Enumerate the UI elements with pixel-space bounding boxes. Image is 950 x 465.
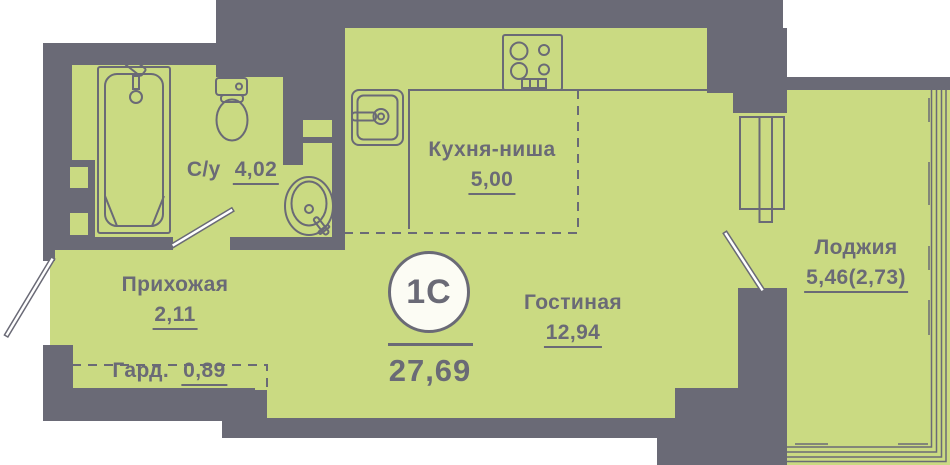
room-label-bathroom: С/у 4,02	[187, 159, 279, 185]
room-label-wardrobe: Гард. 0,89	[112, 360, 227, 386]
bathroom-area: 4,02	[233, 159, 279, 185]
room-label-living: Гостиная 12,94	[524, 292, 622, 348]
kitchen-name: Кухня-ниша	[428, 139, 555, 160]
unit-type-badge: 1С	[388, 251, 470, 333]
room-label-kitchen: Кухня-ниша 5,00	[428, 139, 555, 195]
floor-plan-drawing	[0, 0, 950, 465]
room-label-loggia: Лоджия 5,46(2,73)	[804, 237, 908, 293]
kitchen-area: 5,00	[469, 169, 515, 195]
loggia-area: 5,46(2,73)	[804, 267, 908, 293]
unit-type-label: 1С	[406, 273, 451, 312]
floor-plan: С/у 4,02 Кухня-ниша 5,00 Прихожая 2,11 Г…	[0, 0, 950, 465]
hallway-area: 2,11	[152, 304, 197, 330]
total-area: 27,69	[389, 353, 472, 389]
entrance-door	[4, 257, 54, 337]
living-area: 12,94	[544, 322, 603, 348]
living-corner-floor	[675, 248, 738, 388]
badge-divider-line	[388, 343, 473, 346]
hallway-name: Прихожая	[122, 274, 229, 295]
loggia-name: Лоджия	[804, 237, 908, 258]
room-label-hallway: Прихожая 2,11	[122, 274, 229, 330]
wardrobe-name: Гард.	[112, 360, 169, 381]
wardrobe-area: 0,89	[181, 360, 227, 386]
bathroom-name: С/у	[187, 159, 221, 180]
living-name: Гостиная	[524, 292, 622, 313]
